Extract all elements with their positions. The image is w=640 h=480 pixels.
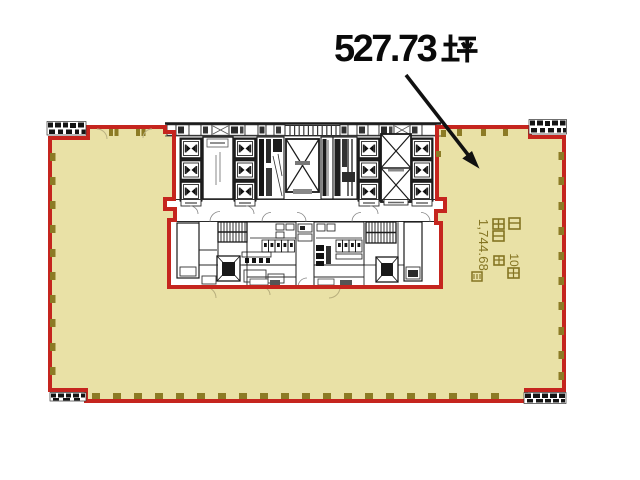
svg-text:527.73: 527.73 (334, 28, 437, 70)
svg-text:1,744.68: 1,744.68 (476, 219, 491, 271)
svg-text:10: 10 (507, 253, 521, 267)
